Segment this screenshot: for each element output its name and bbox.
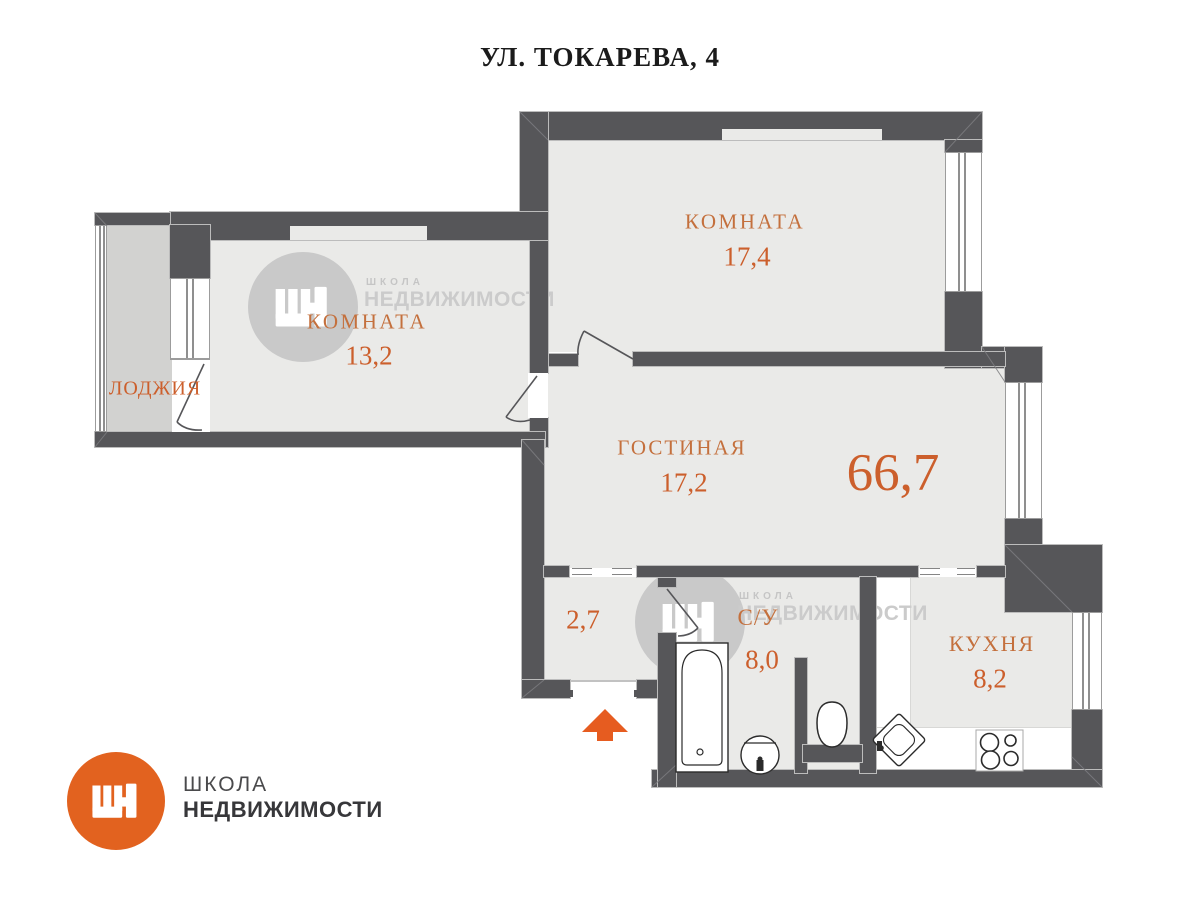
label-bedroom1-name: КОМНАТА [685,210,805,235]
window-glass-line [1088,613,1090,709]
watermark-realty-text: НЕДВИЖИМОСТИ [364,288,555,312]
label-living-area: 17,2 [660,468,707,499]
opening-dash [957,574,975,576]
window-balcony-block [170,278,210,360]
balcony-sill [170,358,210,360]
kitchen-counter-bottom [876,728,1072,770]
floor-loggia [107,225,172,432]
logo-realty-text: НЕДВИЖИМОСТИ [183,797,383,823]
wall-segment [522,440,544,698]
window-glass-line [964,153,966,291]
wall-segment [633,352,1005,366]
entrance-door-jamb [634,690,637,697]
wall-segment [95,432,545,447]
opening-dash [612,574,632,576]
label-bathroom-name: С/У [737,605,778,631]
niche-bedroom2 [290,226,427,240]
label-total-area: 66,7 [847,443,940,503]
page-title: УЛ. ТОКАРЕВА, 4 [0,42,1200,73]
label-bathroom-area: 8,0 [745,645,779,676]
window-kitchen [1072,612,1102,710]
door-opening-bedroom1 [578,352,633,366]
opening-dash [920,568,940,570]
wall-segment [95,213,170,225]
wall-segment [658,577,676,587]
opening-dash [572,574,592,576]
wall-segment [548,354,578,366]
opening-dash [920,574,940,576]
label-loggia: ЛОДЖИЯ [109,378,201,401]
label-bedroom1-area: 17,4 [723,242,770,273]
entrance-arrow-icon [582,709,628,741]
niche-bedroom1 [722,129,882,140]
entrance-door-jamb [570,690,573,697]
label-kitchen-name: КУХНЯ [949,631,1035,657]
label-bedroom2-area: 13,2 [345,341,392,372]
window-bedroom1 [945,152,982,292]
window-living [1005,382,1042,519]
entrance-opening-line [570,680,637,682]
toilet-cistern-wall [803,745,862,762]
wall-segment [530,240,548,373]
wall-segment [945,140,982,152]
wall-segment [1005,347,1042,382]
logo-school-text: ШКОЛА [183,773,268,797]
wall-segment [1005,545,1102,612]
label-bedroom2-name: КОМНАТА [307,310,427,335]
floor-plan-page: УЛ. ТОКАРЕВА, 4 ШКОЛА НЕДВИЖИМОСТИ ШКОЛА… [0,0,1200,900]
opening-dash [957,568,975,570]
wall-segment [977,566,1005,577]
door-opening-bedroom2 [528,373,548,418]
window-glass-line [958,153,960,291]
window-glass-line [99,226,101,431]
window-glass-line [1024,383,1026,518]
wall-segment [860,577,876,773]
wall-segment [658,633,676,787]
opening-dash [612,568,632,570]
logo-monogram-icon [85,770,147,832]
wall-segment [637,566,918,577]
label-hall-area: 2,7 [566,605,600,636]
window-glass-line [1082,613,1084,709]
window-glass-line [186,279,188,359]
watermark-school-text: ШКОЛА [739,591,797,602]
label-kitchen-area: 8,2 [973,664,1007,695]
label-living-name: ГОСТИНАЯ [617,436,746,461]
window-glass-line [192,279,194,359]
wall-segment [170,225,210,278]
window-glass-line [1018,383,1020,518]
window-glass-line [103,226,105,431]
window-loggia [95,225,107,432]
wall-segment [544,566,569,577]
wall-segment [652,770,1102,787]
opening-dash [572,568,592,570]
watermark-school-text: ШКОЛА [366,277,424,288]
wall-segment [522,680,570,698]
